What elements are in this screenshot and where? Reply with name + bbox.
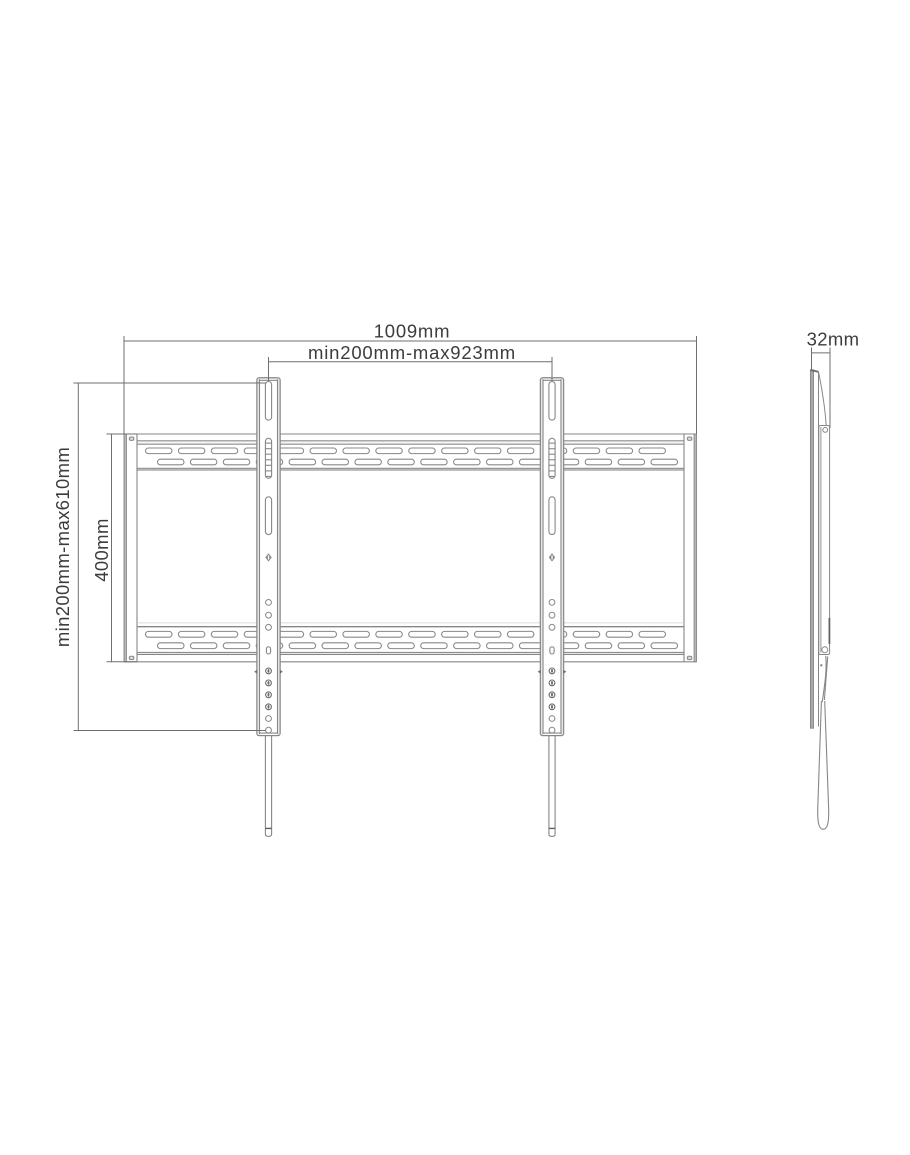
svg-text:32mm: 32mm xyxy=(807,329,860,350)
svg-text:min200mm-max610mm: min200mm-max610mm xyxy=(52,447,73,647)
svg-text:1009mm: 1009mm xyxy=(374,321,450,342)
svg-text:min200mm-max923mm: min200mm-max923mm xyxy=(308,342,516,363)
svg-text:400mm: 400mm xyxy=(91,518,112,581)
